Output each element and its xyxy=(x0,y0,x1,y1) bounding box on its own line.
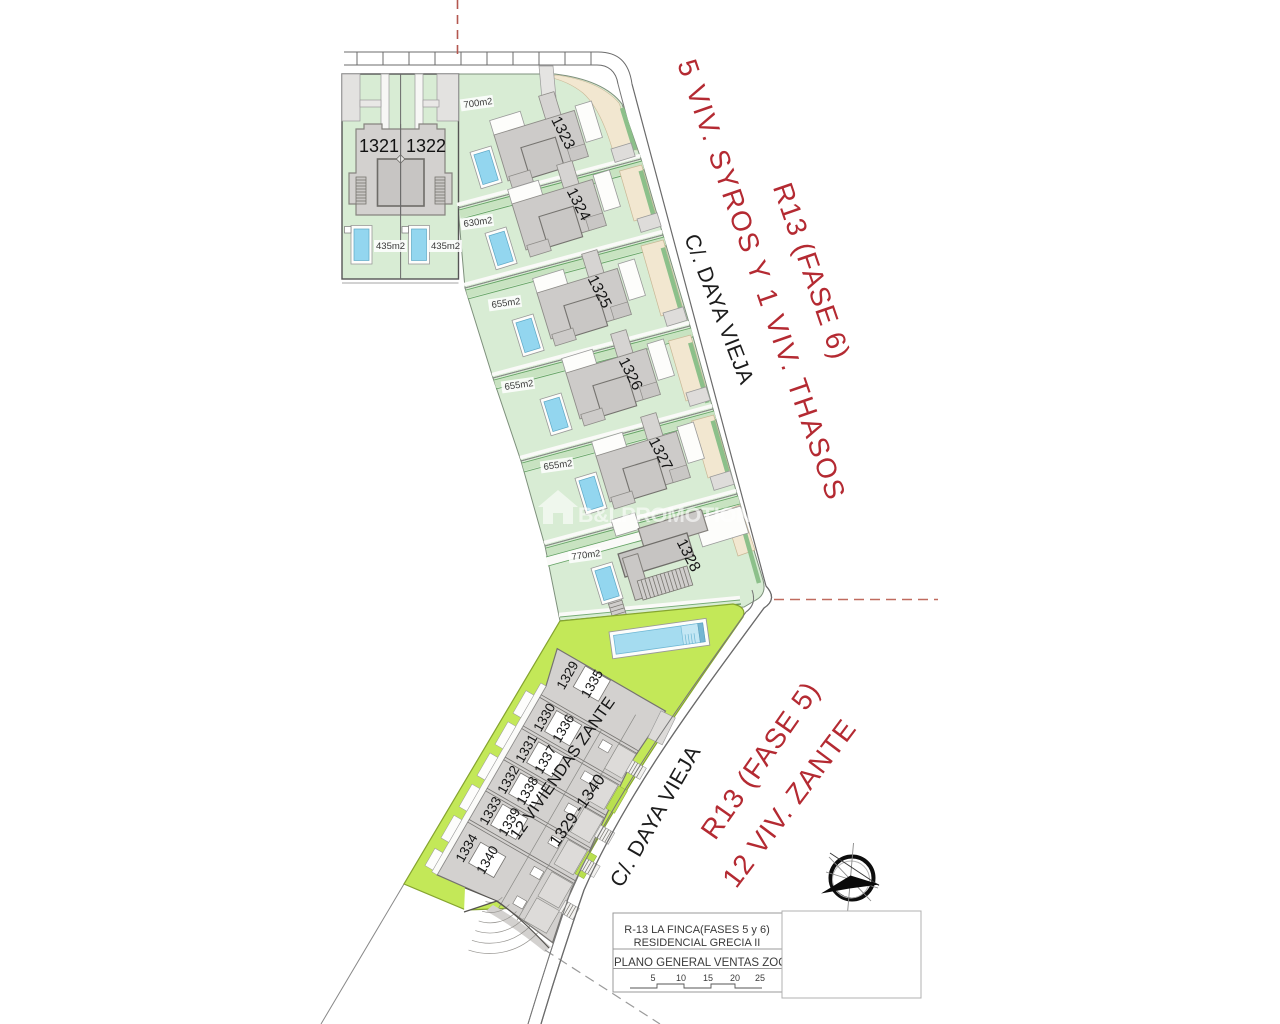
svg-text:435m2: 435m2 xyxy=(376,241,405,252)
svg-text:B&LPROMOTIONS: B&LPROMOTIONS xyxy=(578,503,765,527)
svg-text:5: 5 xyxy=(650,973,655,983)
svg-text:15: 15 xyxy=(703,973,713,983)
svg-text:R-13 LA FINCA(FASES 5 y 6): R-13 LA FINCA(FASES 5 y 6) xyxy=(624,924,770,936)
svg-text:435m2: 435m2 xyxy=(431,241,460,252)
svg-text:20: 20 xyxy=(730,973,740,983)
svg-text:25: 25 xyxy=(755,973,765,983)
svg-text:10: 10 xyxy=(676,973,686,983)
svg-text:1322: 1322 xyxy=(406,136,446,156)
svg-text:PLANO GENERAL VENTAS ZOOM: PLANO GENERAL VENTAS ZOOM xyxy=(614,957,797,969)
svg-text:1321: 1321 xyxy=(359,136,399,156)
svg-text:RESIDENCIAL GRECIA II: RESIDENCIAL GRECIA II xyxy=(634,937,761,949)
